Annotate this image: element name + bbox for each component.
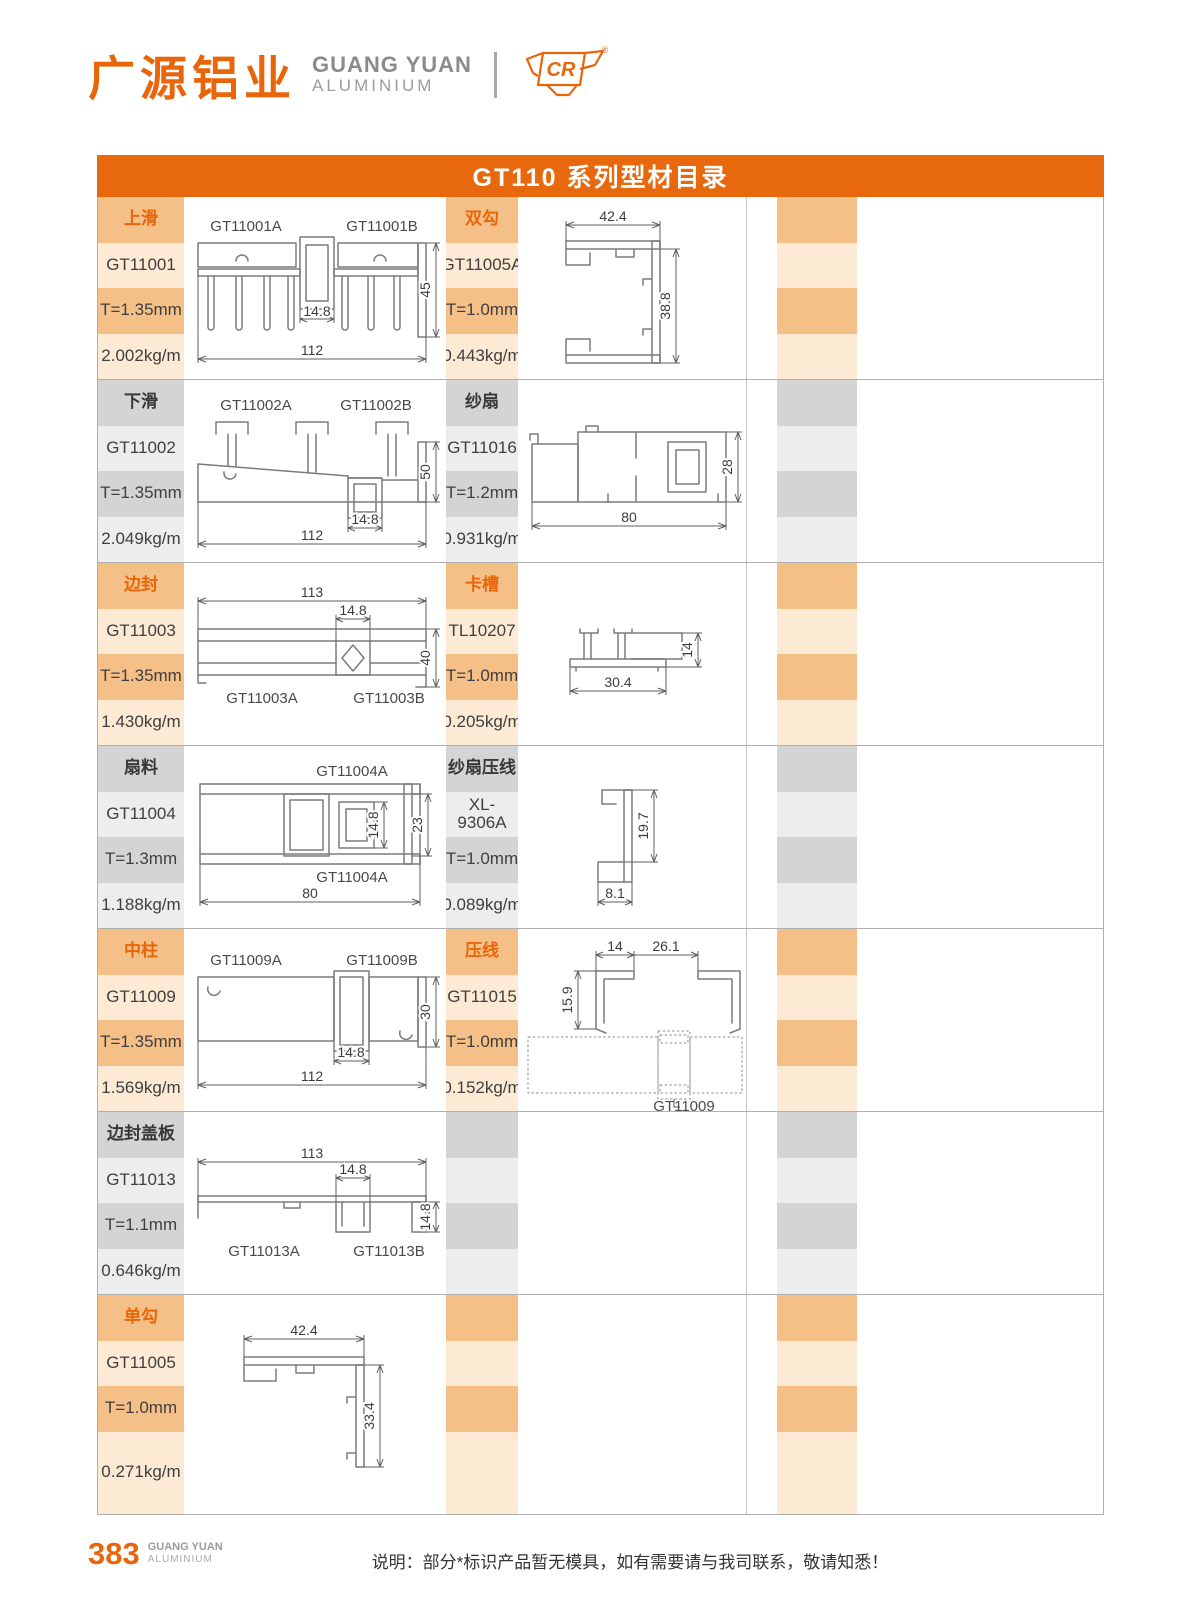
dim-value: 80 [302, 885, 318, 901]
thickness-cell: T=1.0mm [446, 654, 518, 700]
code-cell: GT11013 [98, 1158, 184, 1204]
part-label: GT11013A [228, 1243, 299, 1260]
empty-drawing-cell [518, 1112, 747, 1294]
weight-cell: 0.271kg/m [98, 1432, 184, 1515]
logo-english-line1: GUANG YUAN [312, 53, 472, 77]
thickness-cell: T=1.35mm [98, 471, 184, 517]
product-label-column: 边封 GT11003 T=1.35mm 1.430kg/m [98, 563, 184, 745]
reference-part-label: GT11009 [653, 1098, 714, 1111]
empty-cell [777, 1203, 857, 1249]
table-row: 单勾 GT11005 T=1.0mm 0.271kg/m [98, 1294, 1103, 1514]
product-label-column: 单勾 GT11005 T=1.0mm 0.271kg/m [98, 1295, 184, 1514]
code-cell: GT11009 [98, 975, 184, 1021]
code-cell: XL-9306A [446, 792, 518, 838]
empty-cell [777, 609, 857, 655]
dim-value: 30 [417, 1004, 433, 1020]
dim-value: 112 [301, 527, 324, 543]
thickness-cell: T=1.35mm [98, 1020, 184, 1066]
part-label: GT11003B [353, 690, 424, 707]
table-row: 边封盖板 GT11013 T=1.1mm 0.646kg/m [98, 1111, 1103, 1294]
empty-cell [777, 380, 857, 426]
empty-cell [446, 1386, 518, 1432]
page-number: 383 [88, 1538, 140, 1569]
weight-cell: 0.646kg/m [98, 1249, 184, 1295]
empty-cell [446, 1295, 518, 1341]
dim-value: 14.8 [351, 511, 378, 527]
footer-note: 说明：部分*标识产品暂无模具，如有需要请与我司联系，敬请知悉！ [250, 1548, 1010, 1573]
empty-label-column [777, 197, 857, 379]
empty-cell [777, 471, 857, 517]
thickness-cell: T=1.0mm [446, 288, 518, 334]
profile-drawing-gt11013: 113 14.8 14.8 GT11013A GT11013B [184, 1112, 446, 1294]
dim-value: 14.8 [339, 1161, 366, 1177]
thickness-cell: T=1.35mm [98, 288, 184, 334]
empty-label-column [777, 929, 857, 1111]
cr-mark-text: CR [547, 59, 576, 81]
code-cell: GT11015 [446, 975, 518, 1021]
weight-cell: 0.443kg/m [446, 334, 518, 380]
dim-value: 23 [409, 817, 425, 833]
dim-value: 14.8 [339, 602, 366, 618]
code-cell: GT11002 [98, 426, 184, 472]
empty-cell [777, 1066, 857, 1112]
dim-value: 38.8 [657, 292, 673, 319]
dim-value: 8.1 [605, 885, 625, 901]
dim-value: 28 [719, 459, 735, 475]
category-cell: 单勾 [98, 1295, 184, 1341]
empty-cell [777, 1020, 857, 1066]
profile-drawing-gt11005a: 42.4 38.8 [518, 197, 747, 379]
empty-cell [446, 1203, 518, 1249]
category-cell: 扇料 [98, 746, 184, 792]
weight-cell: 0.931kg/m [446, 517, 518, 563]
dim-value: 40 [417, 650, 433, 666]
dim-value: 113 [301, 1145, 324, 1161]
empty-label-column [446, 1295, 518, 1514]
profile-drawing-gt11002: GT11002A GT11002B [184, 380, 446, 562]
dim-value: 50 [417, 464, 433, 480]
empty-cell [777, 1158, 857, 1204]
logo-divider [494, 52, 497, 98]
dim-value: 33.4 [361, 1402, 377, 1429]
category-cell: 纱扇压线 [446, 746, 518, 792]
empty-cell [777, 929, 857, 975]
empty-cell [446, 1341, 518, 1387]
cr-brand-icon: CR ® [519, 43, 611, 107]
product-label-column: 压线 GT11015 T=1.0mm 0.152kg/m [446, 929, 518, 1111]
category-cell: 边封盖板 [98, 1112, 184, 1158]
logo-english: GUANG YUAN ALUMINIUM [312, 53, 472, 95]
empty-cell [777, 975, 857, 1021]
code-cell: GT11003 [98, 609, 184, 655]
table-row: 边封 GT11003 T=1.35mm 1.430kg/m [98, 562, 1103, 745]
dim-value: 14.8 [365, 811, 381, 838]
profile-drawing-gt11001: GT11001A GT11001B [184, 197, 446, 379]
empty-cell [777, 1295, 857, 1341]
product-label-column: 纱扇 GT11016 T=1.2mm 0.931kg/m [446, 380, 518, 562]
product-label-column: 卡槽 TL10207 T=1.0mm 0.205kg/m [446, 563, 518, 745]
empty-cell [777, 426, 857, 472]
table-row: 中柱 GT11009 T=1.35mm 1.569kg/m GT11009A G… [98, 928, 1103, 1111]
category-cell: 双勾 [446, 197, 518, 243]
empty-label-column [777, 1112, 857, 1294]
table-row: 下滑 GT11002 T=1.35mm 2.049kg/m GT11002A G… [98, 379, 1103, 562]
weight-cell: 2.049kg/m [98, 517, 184, 563]
empty-label-column [777, 563, 857, 745]
empty-label-column [777, 380, 857, 562]
empty-cell [777, 197, 857, 243]
profile-drawing-gt11005: 42.4 33.4 [184, 1295, 446, 1514]
empty-cell [446, 1249, 518, 1295]
empty-cell [777, 334, 857, 380]
dim-value: 42.4 [290, 1322, 317, 1338]
empty-product-slot [747, 746, 1103, 928]
part-label: GT11003A [226, 690, 297, 707]
dim-value: 15.9 [559, 986, 575, 1013]
profile-drawing-tl10207: 14 30.4 [518, 563, 747, 745]
part-label: GT11009B [346, 952, 417, 969]
dim-value: 14.8 [337, 1044, 364, 1060]
category-cell: 压线 [446, 929, 518, 975]
weight-cell: 1.430kg/m [98, 700, 184, 746]
empty-cell [777, 563, 857, 609]
thickness-cell: T=1.0mm [446, 1020, 518, 1066]
empty-cell [777, 746, 857, 792]
profile-drawing-gt11004: GT11004A 14.8 [184, 746, 446, 928]
profile-drawing-xl9306a: 19.7 8.1 [518, 746, 747, 928]
category-cell: 下滑 [98, 380, 184, 426]
dim-value: 112 [301, 342, 324, 358]
part-label: GT11001B [346, 218, 417, 235]
empty-cell [777, 700, 857, 746]
empty-cell [777, 288, 857, 334]
empty-product-slot [747, 1295, 1103, 1514]
category-cell: 纱扇 [446, 380, 518, 426]
footer-page-block: 383 GUANG YUAN ALUMINIUM [88, 1538, 223, 1569]
footer-brand-line1: GUANG YUAN [148, 1541, 223, 1554]
part-label: GT11004A [316, 763, 387, 780]
category-cell: 卡槽 [446, 563, 518, 609]
code-cell: GT11016 [446, 426, 518, 472]
profile-drawing-gt11009: GT11009A GT11009B 3 [184, 929, 446, 1111]
table-row: 扇料 GT11004 T=1.3mm 1.188kg/m GT11004A [98, 745, 1103, 928]
empty-product-slot [747, 380, 1103, 562]
weight-cell: 0.152kg/m [446, 1066, 518, 1112]
code-cell: TL10207 [446, 609, 518, 655]
empty-label-column [777, 746, 857, 928]
dim-value: 42.4 [599, 208, 626, 224]
profile-drawing-gt11016: 28 80 [518, 380, 747, 562]
weight-cell: 1.188kg/m [98, 883, 184, 929]
empty-cell [446, 1112, 518, 1158]
part-label: GT11002A [220, 397, 291, 414]
empty-cell [777, 1249, 857, 1295]
thickness-cell: T=1.3mm [98, 837, 184, 883]
dim-value: 30.4 [604, 674, 631, 690]
registered-mark: ® [602, 45, 609, 55]
dim-value: 26.1 [652, 938, 679, 954]
weight-cell: 0.205kg/m [446, 700, 518, 746]
dim-value: 14 [607, 938, 623, 954]
product-label-column: 上滑 GT11001 T=1.35mm 2.002kg/m [98, 197, 184, 379]
empty-cell [777, 792, 857, 838]
dim-value: 14.8 [303, 303, 330, 319]
thickness-cell: T=1.2mm [446, 471, 518, 517]
empty-cell [777, 243, 857, 289]
weight-cell: 2.002kg/m [98, 334, 184, 380]
dim-value: 19.7 [635, 812, 651, 839]
product-label-column: 边封盖板 GT11013 T=1.1mm 0.646kg/m [98, 1112, 184, 1294]
empty-label-column [446, 1112, 518, 1294]
profile-drawing-gt11003: 113 14.8 40 GT11003A GT11003B [184, 563, 446, 745]
code-cell: GT11005A [446, 243, 518, 289]
dim-value: 113 [301, 584, 324, 600]
empty-cell [777, 1112, 857, 1158]
code-cell: GT11001 [98, 243, 184, 289]
footer-brand-line2: ALUMINIUM [148, 1554, 223, 1566]
category-cell: 边封 [98, 563, 184, 609]
thickness-cell: T=1.35mm [98, 654, 184, 700]
part-label: GT11004A [316, 869, 387, 886]
empty-product-slot [747, 563, 1103, 745]
product-label-column: 双勾 GT11005A T=1.0mm 0.443kg/m [446, 197, 518, 379]
logo-english-line2: ALUMINIUM [312, 77, 472, 95]
empty-product-slot [747, 197, 1103, 379]
dim-value: 80 [621, 509, 637, 525]
empty-cell [777, 1341, 857, 1387]
product-label-column: 扇料 GT11004 T=1.3mm 1.188kg/m [98, 746, 184, 928]
part-label: GT11009A [210, 952, 281, 969]
catalog-page: 广源铝业 GUANG YUAN ALUMINIUM CR ® GT110 系列型… [0, 0, 1200, 1617]
empty-cell [446, 1432, 518, 1515]
footer-brand: GUANG YUAN ALUMINIUM [148, 1541, 223, 1565]
dim-value: 45 [417, 282, 433, 298]
empty-cell [777, 1432, 857, 1515]
empty-cell [777, 517, 857, 563]
part-label: GT11001A [210, 218, 281, 235]
code-cell: GT11004 [98, 792, 184, 838]
profile-drawing-gt11015: 14 26.1 15.9 GT11009 [518, 929, 747, 1111]
thickness-cell: T=1.1mm [98, 1203, 184, 1249]
table-row: 上滑 GT11001 T=1.35mm 2.002kg/m GT11001A G… [98, 197, 1103, 379]
series-title-bar: GT110 系列型材目录 [97, 155, 1104, 197]
code-cell: GT11005 [98, 1341, 184, 1387]
empty-cell [446, 1158, 518, 1204]
thickness-cell: T=1.0mm [98, 1386, 184, 1432]
profile-catalog-table: 上滑 GT11001 T=1.35mm 2.002kg/m GT11001A G… [97, 197, 1104, 1515]
dim-value: 14.8 [417, 1203, 433, 1230]
category-cell: 中柱 [98, 929, 184, 975]
product-label-column: 中柱 GT11009 T=1.35mm 1.569kg/m [98, 929, 184, 1111]
empty-product-slot [747, 1112, 1103, 1294]
empty-cell [777, 654, 857, 700]
dim-value: 14 [679, 642, 695, 658]
thickness-cell: T=1.0mm [446, 837, 518, 883]
category-cell: 上滑 [98, 197, 184, 243]
part-label: GT11002B [340, 397, 411, 414]
empty-product-slot [747, 929, 1103, 1111]
weight-cell: 1.569kg/m [98, 1066, 184, 1112]
logo-chinese: 广源铝业 [88, 40, 296, 109]
dim-value: 112 [301, 1068, 324, 1084]
empty-label-column [777, 1295, 857, 1514]
product-label-column: 下滑 GT11002 T=1.35mm 2.049kg/m [98, 380, 184, 562]
empty-cell [777, 883, 857, 929]
product-label-column: 纱扇压线 XL-9306A T=1.0mm 0.089kg/m [446, 746, 518, 928]
empty-cell [777, 1386, 857, 1432]
header: 广源铝业 GUANG YUAN ALUMINIUM CR ® [88, 40, 611, 109]
empty-cell [777, 837, 857, 883]
weight-cell: 0.089kg/m [446, 883, 518, 929]
empty-drawing-cell [518, 1295, 747, 1514]
part-label: GT11013B [353, 1243, 424, 1260]
